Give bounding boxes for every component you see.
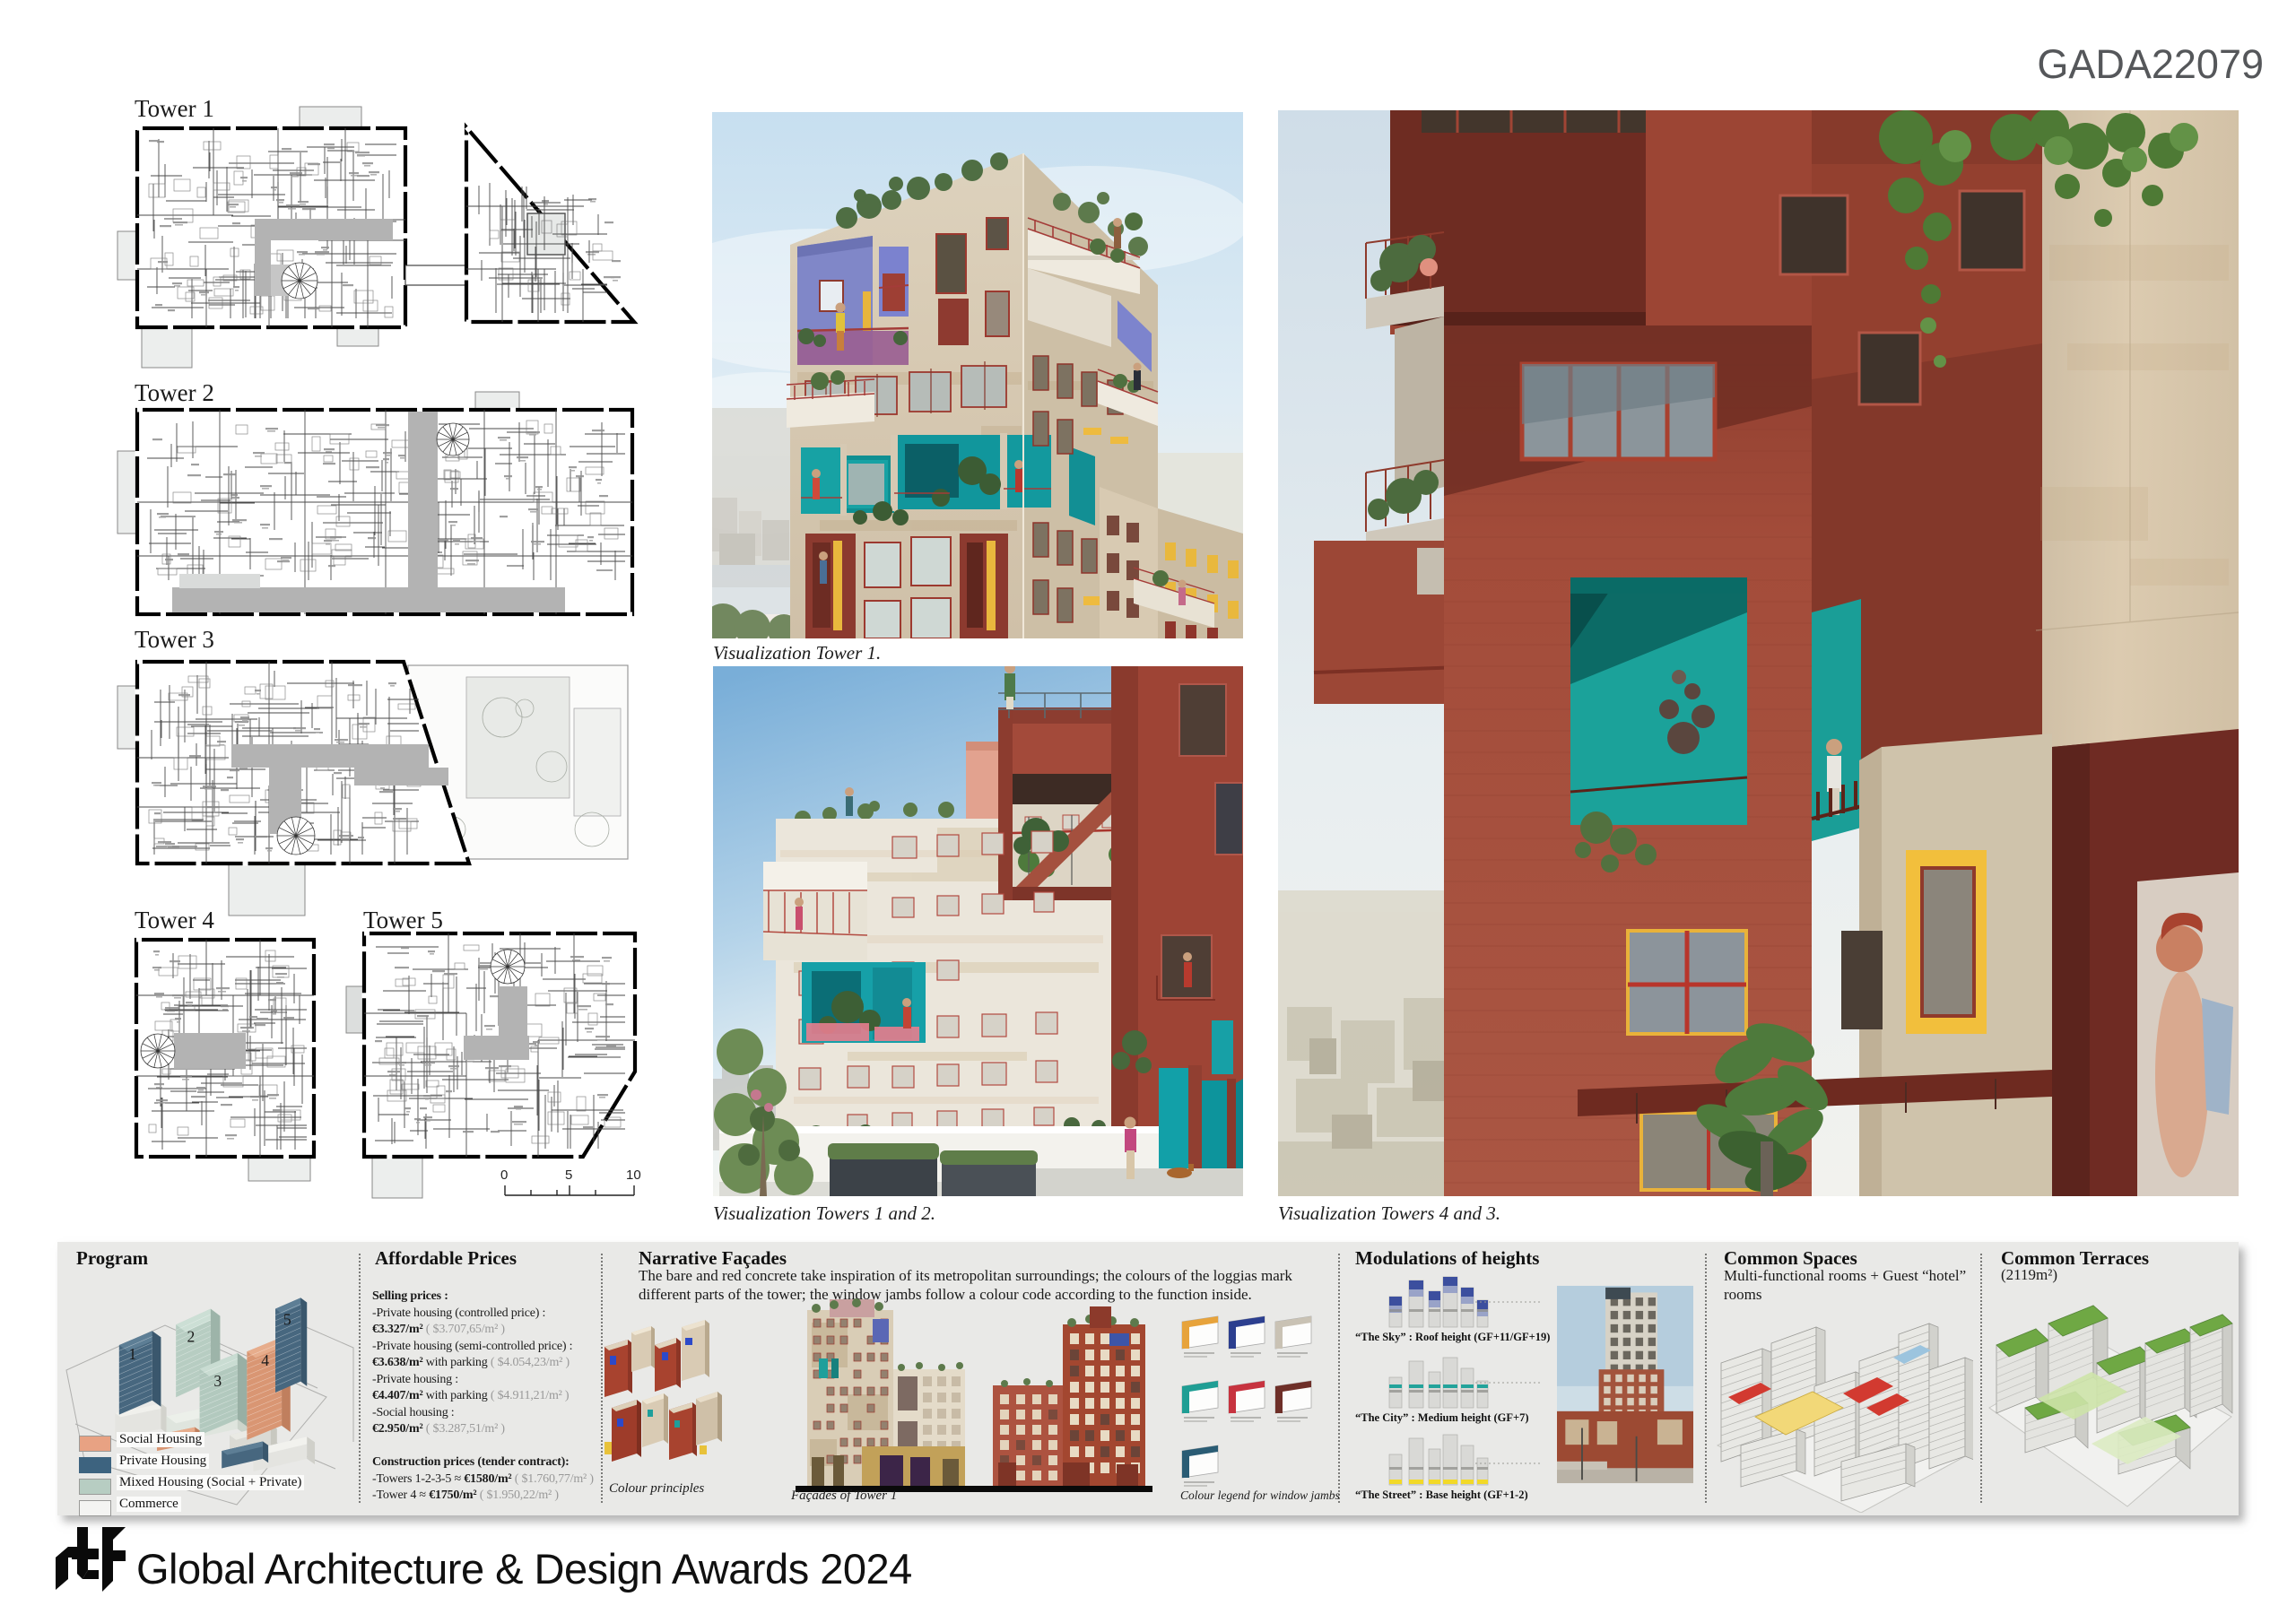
svg-text:4: 4 [261,1351,269,1369]
svg-text:10: 10 [626,1167,641,1183]
svg-text:Tower 5: Tower 5 [363,907,443,933]
svg-text:5: 5 [283,1310,291,1328]
svg-text:Tower 1: Tower 1 [135,95,214,122]
svg-text:0: 0 [500,1167,508,1183]
svg-text:2: 2 [187,1328,195,1346]
svg-text:Tower 2: Tower 2 [135,379,214,406]
svg-text:3: 3 [213,1372,222,1390]
svg-text:Tower 4: Tower 4 [135,907,214,933]
svg-text:1: 1 [128,1345,136,1363]
svg-text:5: 5 [565,1167,572,1183]
svg-text:Tower 3: Tower 3 [135,626,214,653]
